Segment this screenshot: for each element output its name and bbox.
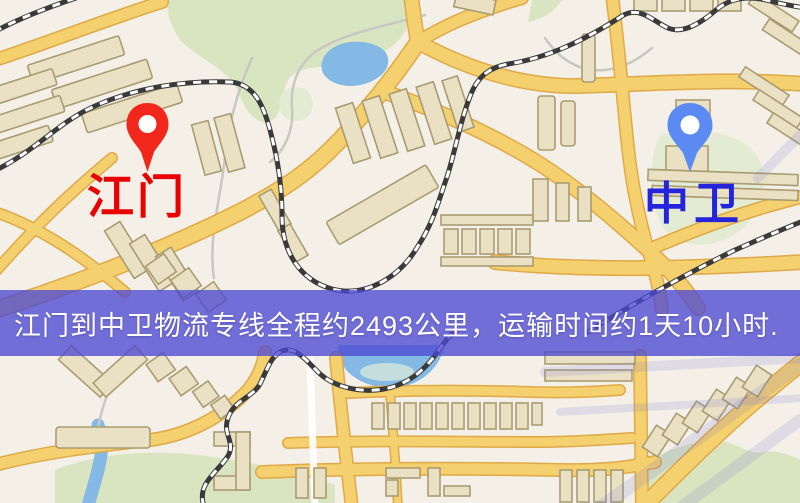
destination-pin-icon <box>666 102 714 179</box>
origin-pin-icon <box>125 102 170 179</box>
destination-city-label: 中卫 <box>644 181 744 226</box>
route-info-text: 江门到中卫物流专线全程约2493公里，运输时间约1天10小时. <box>14 304 779 343</box>
logistics-route-map: 江门 中卫 江门到中卫物流专线全程约2493公里，运输时间约1天10小时. <box>0 0 800 503</box>
route-info-banner: 江门到中卫物流专线全程约2493公里，运输时间约1天10小时. <box>0 290 800 356</box>
map-canvas <box>0 0 800 503</box>
origin-city-label: 江门 <box>87 174 187 221</box>
